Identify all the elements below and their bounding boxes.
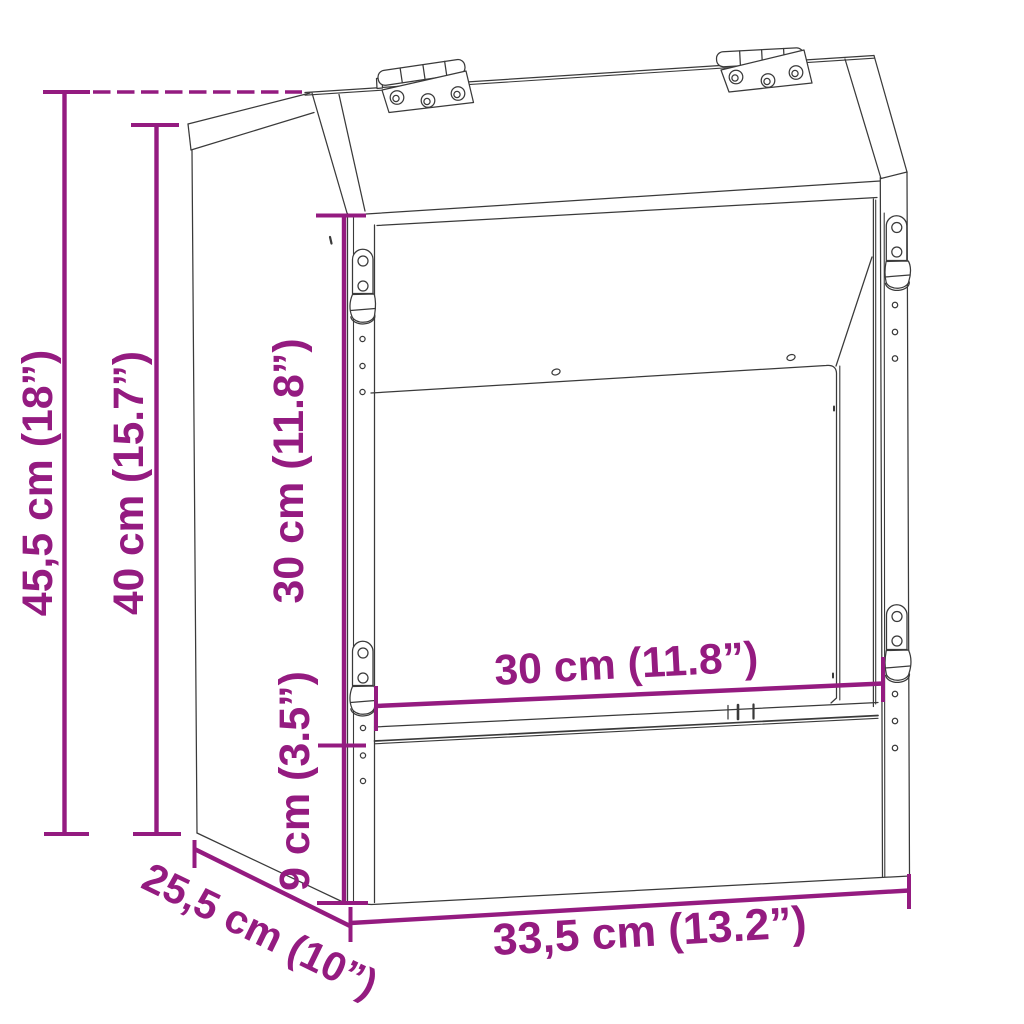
svg-text:30 cm (11.8”): 30 cm (11.8”) bbox=[265, 338, 313, 603]
svg-text:9 cm (3.5”): 9 cm (3.5”) bbox=[271, 671, 319, 891]
svg-text:45,5 cm (18”): 45,5 cm (18”) bbox=[14, 350, 62, 616]
svg-text:40 cm (15.7”): 40 cm (15.7”) bbox=[105, 351, 152, 615]
